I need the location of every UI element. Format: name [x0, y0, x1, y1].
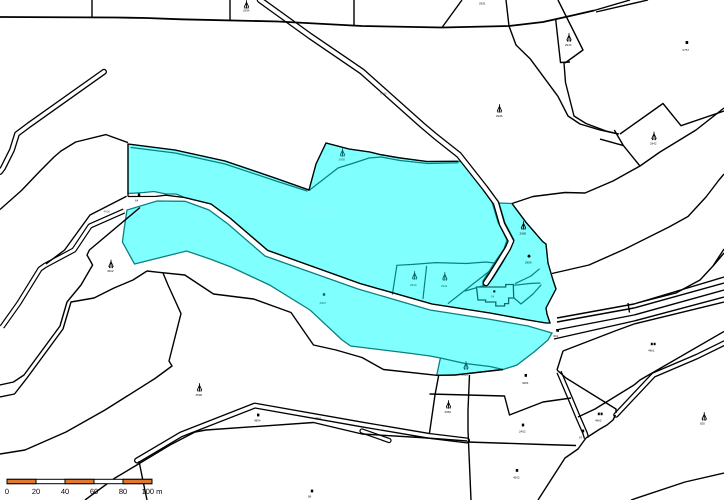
svg-text:60: 60 [90, 487, 98, 496]
svg-text:4962: 4962 [595, 419, 602, 423]
svg-text:2944: 2944 [565, 43, 572, 47]
svg-text:100 m: 100 m [142, 487, 163, 496]
svg-text:2907: 2907 [320, 301, 327, 305]
svg-text:861: 861 [554, 334, 559, 338]
svg-text:2915: 2915 [462, 373, 469, 377]
svg-text:2942: 2942 [650, 142, 657, 146]
svg-text:0: 0 [5, 487, 9, 496]
svg-text:2905/1: 2905/1 [302, 204, 333, 215]
svg-text:4961: 4961 [648, 349, 655, 353]
svg-text:4651: 4651 [522, 381, 529, 385]
svg-text:4652: 4652 [513, 476, 520, 480]
svg-text:64: 64 [135, 199, 139, 203]
svg-text:40: 40 [61, 487, 69, 496]
svg-text:4854: 4854 [254, 419, 261, 423]
svg-text:2910: 2910 [410, 283, 417, 287]
svg-text:2934: 2934 [243, 9, 250, 13]
svg-text:820: 820 [700, 422, 705, 426]
svg-text:4600: 4600 [104, 210, 111, 214]
svg-text:2911: 2911 [441, 284, 448, 288]
svg-text:4602: 4602 [107, 269, 114, 273]
svg-text:88: 88 [308, 495, 312, 499]
svg-text:6757: 6757 [683, 48, 690, 52]
svg-text:2905: 2905 [339, 158, 346, 162]
svg-text:54: 54 [491, 295, 495, 299]
svg-text:2952: 2952 [445, 410, 452, 414]
svg-text:80: 80 [119, 487, 127, 496]
svg-text:2861: 2861 [315, 417, 322, 421]
svg-text:2908: 2908 [520, 232, 527, 236]
svg-text:4598: 4598 [196, 393, 203, 397]
svg-text:20: 20 [32, 487, 40, 496]
svg-text:2402: 2402 [519, 430, 526, 434]
svg-text:2909: 2909 [525, 261, 532, 265]
svg-text:2936: 2936 [496, 114, 503, 118]
svg-text:2931: 2931 [479, 2, 486, 6]
svg-text:67: 67 [579, 436, 583, 440]
svg-text:2938: 2938 [380, 92, 387, 96]
